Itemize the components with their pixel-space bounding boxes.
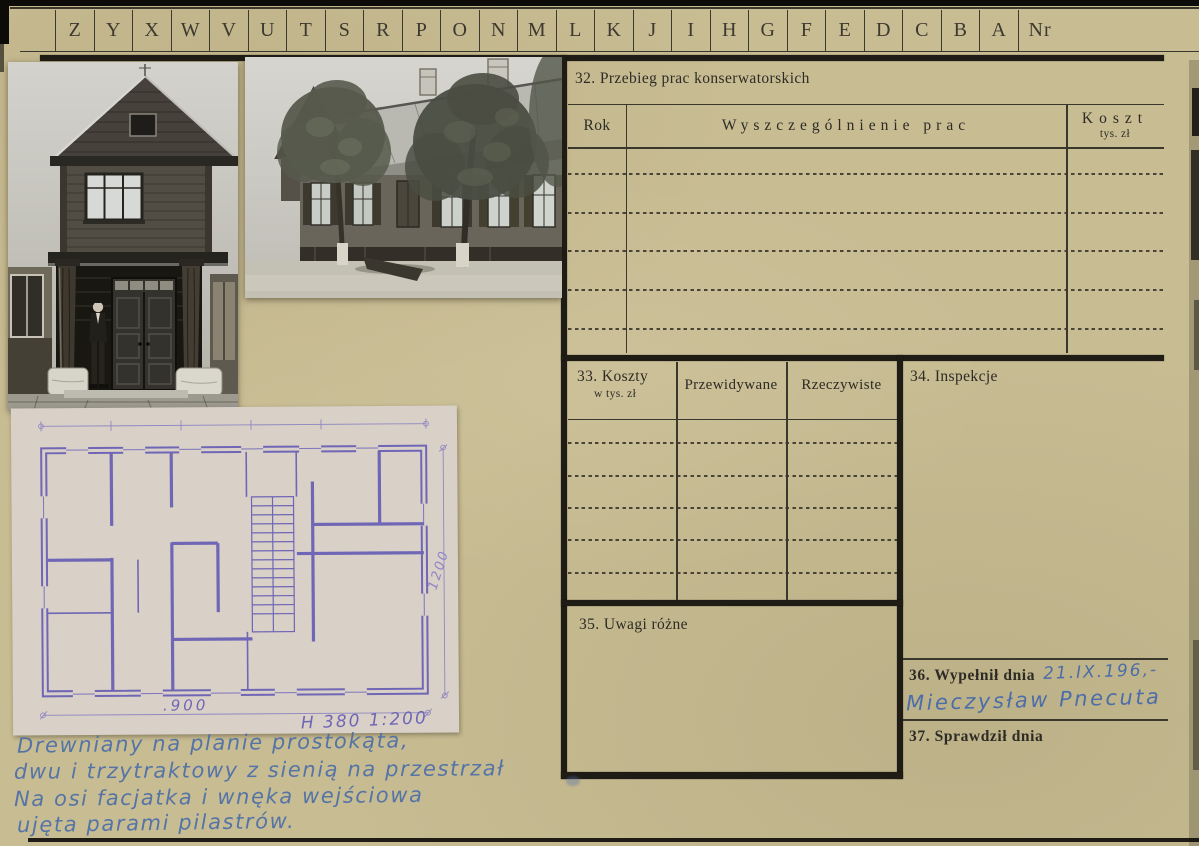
tab-letter-J: J xyxy=(633,10,673,51)
tab-letter-label: O xyxy=(453,19,468,42)
scan-blotch-right-2 xyxy=(1191,150,1199,260)
plan-height-dimension: 1200 xyxy=(426,548,453,592)
s36-top-rule xyxy=(903,658,1168,660)
tab-letter-label: K xyxy=(607,19,622,42)
tab-letter-F: F xyxy=(787,10,827,51)
section37-label: 37. Sprawdził dnia xyxy=(909,728,1043,746)
tab-letter-label: L xyxy=(569,19,582,42)
tab-letter-B: B xyxy=(941,10,981,51)
scan-edge-top xyxy=(0,0,1199,6)
section33-bottom-bar xyxy=(561,600,903,606)
dotted-rule xyxy=(568,539,897,541)
tab-letter-label: B xyxy=(954,19,968,42)
tab-letter-G: G xyxy=(748,10,788,51)
dotted-rule xyxy=(568,442,897,444)
tab-letter-label: E xyxy=(839,19,852,42)
section35-bottom-bar xyxy=(561,772,903,779)
tab-letter-label: D xyxy=(876,19,891,42)
tab-letter-Y: Y xyxy=(94,10,134,51)
costs-table-empty-rows xyxy=(568,360,897,600)
tab-letter-H: H xyxy=(710,10,750,51)
tab-letter-T: T xyxy=(286,10,326,51)
tab-letter-R: R xyxy=(363,10,403,51)
tab-letter-label: J xyxy=(648,19,657,42)
dotted-rule xyxy=(568,328,1164,330)
section36-label: 36. Wypełnił dnia xyxy=(909,667,1035,685)
dotted-rule xyxy=(568,475,897,477)
s36-signature-handwritten: Mieczysław Pnecuta xyxy=(906,685,1162,716)
tab-letter-Z: Z xyxy=(55,10,95,51)
tab-letter-U: U xyxy=(248,10,288,51)
dotted-rule xyxy=(568,173,1164,175)
tab-letter-label: U xyxy=(260,19,275,42)
works-table-empty-rows xyxy=(568,105,1164,355)
scanned-heritage-record-card: ZYXWVUTSRPONMLKJIHGFEDCBANr 32. Przebieg… xyxy=(0,0,1199,846)
blue-ink-smudge xyxy=(566,776,580,786)
tab-letter-label: I xyxy=(687,19,695,42)
tab-letter-label: C xyxy=(915,19,929,42)
tab-letter-label: P xyxy=(416,19,428,42)
section34-title: 34. Inspekcje xyxy=(910,368,998,386)
strip-bottom-rule xyxy=(20,51,1199,52)
tab-letter-N: N xyxy=(479,10,519,51)
note-line-2: dwu i trzytraktowy z sienią na przestrza… xyxy=(14,756,505,783)
tab-letter-label: M xyxy=(528,19,547,42)
floor-plan-sheet: .900 H 380 1:200 1200 xyxy=(11,405,459,735)
note-line-1: Drewniany na planie prostokąta, xyxy=(17,728,410,757)
tab-letter-C: C xyxy=(902,10,942,51)
dotted-rule xyxy=(568,250,1164,252)
form-top-bar xyxy=(40,55,1164,61)
alphabet-tab-strip: ZYXWVUTSRPONMLKJIHGFEDCBANr xyxy=(0,0,1199,54)
tab-letter-V: V xyxy=(209,10,249,51)
strip-top-rule xyxy=(10,7,1199,9)
scan-blotch-right-3 xyxy=(1194,300,1199,370)
tab-letter-K: K xyxy=(594,10,634,51)
tab-letter-label: W xyxy=(181,19,201,42)
tab-letter-O: O xyxy=(440,10,480,51)
tab-letter-label: A xyxy=(992,19,1007,42)
tab-letter-P: P xyxy=(402,10,442,51)
tab-letter-I: I xyxy=(671,10,711,51)
section35-title: 35. Uwagi różne xyxy=(579,616,688,634)
tab-letter-M: M xyxy=(517,10,557,51)
tab-letter-label: T xyxy=(300,19,313,42)
tab-letter-label: G xyxy=(761,19,776,42)
tab-letter-label: F xyxy=(801,19,813,42)
plan-width-dimension: .900 xyxy=(163,696,209,714)
dotted-rule xyxy=(568,289,1164,291)
photo-house-facade xyxy=(245,57,562,298)
tab-letter-label: H xyxy=(722,19,737,42)
s36-date-handwritten: 21.IX.196,- xyxy=(1043,660,1159,684)
dotted-rule xyxy=(568,212,1164,214)
note-line-3: Na osi facjatka i wnęka wejściowa xyxy=(14,783,424,811)
note-line-4: ujęta parami pilastrów. xyxy=(17,809,296,837)
tab-letter-L: L xyxy=(556,10,596,51)
tab-letter-A: A xyxy=(979,10,1019,51)
scan-blotch-right-1 xyxy=(1192,88,1199,136)
scan-blotch-right-4 xyxy=(1193,640,1199,770)
tab-letter-label: Y xyxy=(106,19,121,42)
tab-letter-E: E xyxy=(825,10,865,51)
dotted-rule xyxy=(568,572,897,574)
tab-letter-S: S xyxy=(325,10,365,51)
dotted-rule xyxy=(568,507,897,509)
scan-edge-left-notch xyxy=(0,44,4,72)
tab-letter-W: W xyxy=(171,10,211,51)
section32-title: 32. Przebieg prac konserwatorskich xyxy=(575,70,810,88)
tab-letter-D: D xyxy=(864,10,904,51)
tab-cell-nr: Nr xyxy=(1018,10,1087,51)
middle-column-divider-bar xyxy=(897,355,903,779)
tab-letter-label: X xyxy=(145,19,160,42)
scan-edge-bottom-rule xyxy=(28,838,1199,842)
tab-letter-X: X xyxy=(132,10,172,51)
tab-letter-label: S xyxy=(339,19,351,42)
tab-letter-label: Z xyxy=(69,19,82,42)
s37-top-rule xyxy=(903,719,1168,721)
scan-edge-top-left xyxy=(0,0,9,44)
tab-letter-label: N xyxy=(491,19,506,42)
tab-letter-label: R xyxy=(376,19,390,42)
photo-gatehouse xyxy=(8,62,238,410)
tab-nr-label: Nr xyxy=(1029,19,1052,42)
tab-letter-label: V xyxy=(222,19,237,42)
